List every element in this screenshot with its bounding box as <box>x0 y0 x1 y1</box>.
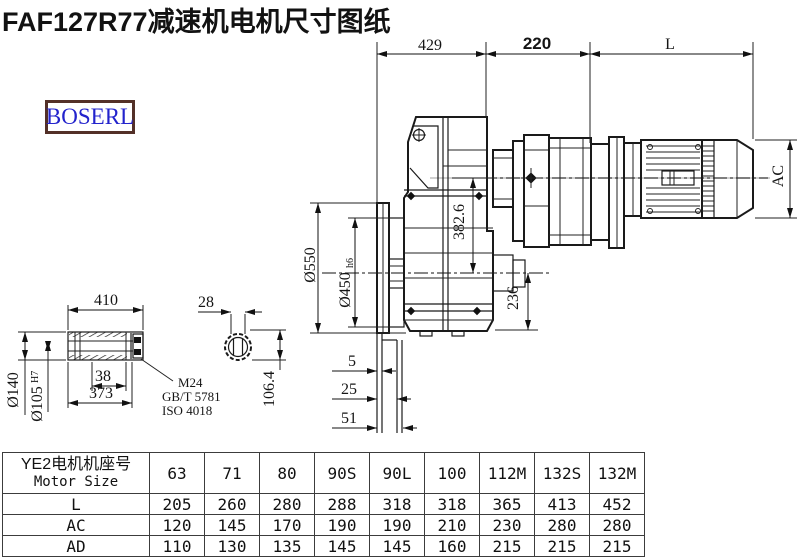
cell-AD-63: 110 <box>150 536 205 557</box>
dim-373: 373 <box>89 385 113 402</box>
dim-25: 25 <box>341 381 357 398</box>
dim-5: 5 <box>348 353 356 370</box>
dim-382: 382.6 <box>451 204 468 240</box>
dim-dia450: Ø450 <box>337 272 354 308</box>
cell-AC-100: 210 <box>425 515 480 536</box>
cell-L-80: 280 <box>260 494 315 515</box>
row-label-AC: AC <box>3 515 150 536</box>
motor-fins <box>646 146 700 212</box>
dim-dia140: Ø140 <box>5 372 22 408</box>
diameter-dimensions: Ø550 Ø450 h6 <box>302 203 406 333</box>
cell-L-71: 260 <box>205 494 260 515</box>
table-row-L: L 205 260 280 288 318 318 365 413 452 <box>3 494 645 515</box>
dim-dia105: Ø105 <box>29 386 46 422</box>
top-dimensions: 429 220 L <box>377 34 753 205</box>
cell-AC-90S: 190 <box>315 515 370 536</box>
r77-stage <box>493 135 624 248</box>
cell-L-132S: 413 <box>535 494 590 515</box>
col-112M: 112M <box>480 453 535 494</box>
callout-thread: M24 <box>178 375 203 390</box>
cell-L-63: 205 <box>150 494 205 515</box>
cell-L-132M: 452 <box>590 494 645 515</box>
dim-429: 429 <box>418 37 442 54</box>
row-label-AD: AD <box>3 536 150 557</box>
col-100: 100 <box>425 453 480 494</box>
dim-L: L <box>665 36 675 53</box>
cell-AC-132M: 280 <box>590 515 645 536</box>
cell-AC-112M: 230 <box>480 515 535 536</box>
cell-AD-90S: 145 <box>315 536 370 557</box>
dim-410: 410 <box>94 292 118 309</box>
callout-std1: GB/T 5781 <box>162 389 221 404</box>
col-132M: 132M <box>590 453 645 494</box>
dim-220: 220 <box>523 34 551 53</box>
dim-dia105-suffix: H7 <box>30 371 41 383</box>
dim-1064: 106.4 <box>261 371 278 407</box>
col-90S: 90S <box>315 453 370 494</box>
dim-dia550: Ø550 <box>302 247 319 283</box>
cell-AD-112M: 215 <box>480 536 535 557</box>
cell-AC-132S: 280 <box>535 515 590 536</box>
cell-AD-132S: 215 <box>535 536 590 557</box>
cell-L-90L: 318 <box>370 494 425 515</box>
table-row-AC: AC 120 145 170 190 190 210 230 280 280 <box>3 515 645 536</box>
header-cn: YE2电机机座号 <box>3 455 149 474</box>
dim-dia450-suffix: h6 <box>345 258 356 268</box>
row-label-L: L <box>3 494 150 515</box>
callout-std2: ISO 4018 <box>162 403 212 418</box>
dim-AC: AC <box>770 165 787 187</box>
table-row-AD: AD 110 130 135 145 145 160 215 215 215 <box>3 536 645 557</box>
dim-28: 28 <box>198 294 214 311</box>
cell-AC-90L: 190 <box>370 515 425 536</box>
cell-L-90S: 288 <box>315 494 370 515</box>
technical-drawing: 429 220 L Ø550 Ø450 h6 382.6 236 <box>0 0 800 452</box>
cell-AD-90L: 145 <box>370 536 425 557</box>
motor-size-table: YE2电机机座号 Motor Size 63 71 80 90S 90L 100… <box>2 452 645 557</box>
motor <box>624 140 753 218</box>
col-90L: 90L <box>370 453 425 494</box>
col-71: 71 <box>205 453 260 494</box>
cell-AD-132M: 215 <box>590 536 645 557</box>
col-63: 63 <box>150 453 205 494</box>
dim-51: 51 <box>341 410 357 427</box>
header-en: Motor Size <box>3 474 149 491</box>
table-header-motor-size: YE2电机机座号 Motor Size <box>3 453 150 494</box>
cell-AC-71: 145 <box>205 515 260 536</box>
cell-L-100: 318 <box>425 494 480 515</box>
col-132S: 132S <box>535 453 590 494</box>
cell-AD-71: 130 <box>205 536 260 557</box>
dim-38: 38 <box>95 368 111 385</box>
cell-AD-100: 160 <box>425 536 480 557</box>
wall-dimensions: 5 25 51 <box>332 353 417 428</box>
cell-AC-63: 120 <box>150 515 205 536</box>
cell-L-112M: 365 <box>480 494 535 515</box>
dim-236: 236 <box>505 286 522 310</box>
shaft-detail: 410 Ø140 Ø105 H7 38 373 M24 <box>5 292 221 422</box>
table-header-row: YE2电机机座号 Motor Size 63 71 80 90S 90L 100… <box>3 453 645 494</box>
cell-AC-80: 170 <box>260 515 315 536</box>
cell-AD-80: 135 <box>260 536 315 557</box>
col-80: 80 <box>260 453 315 494</box>
page: FAF127R77减速机电机尺寸图纸 BOSERL <box>0 0 800 557</box>
